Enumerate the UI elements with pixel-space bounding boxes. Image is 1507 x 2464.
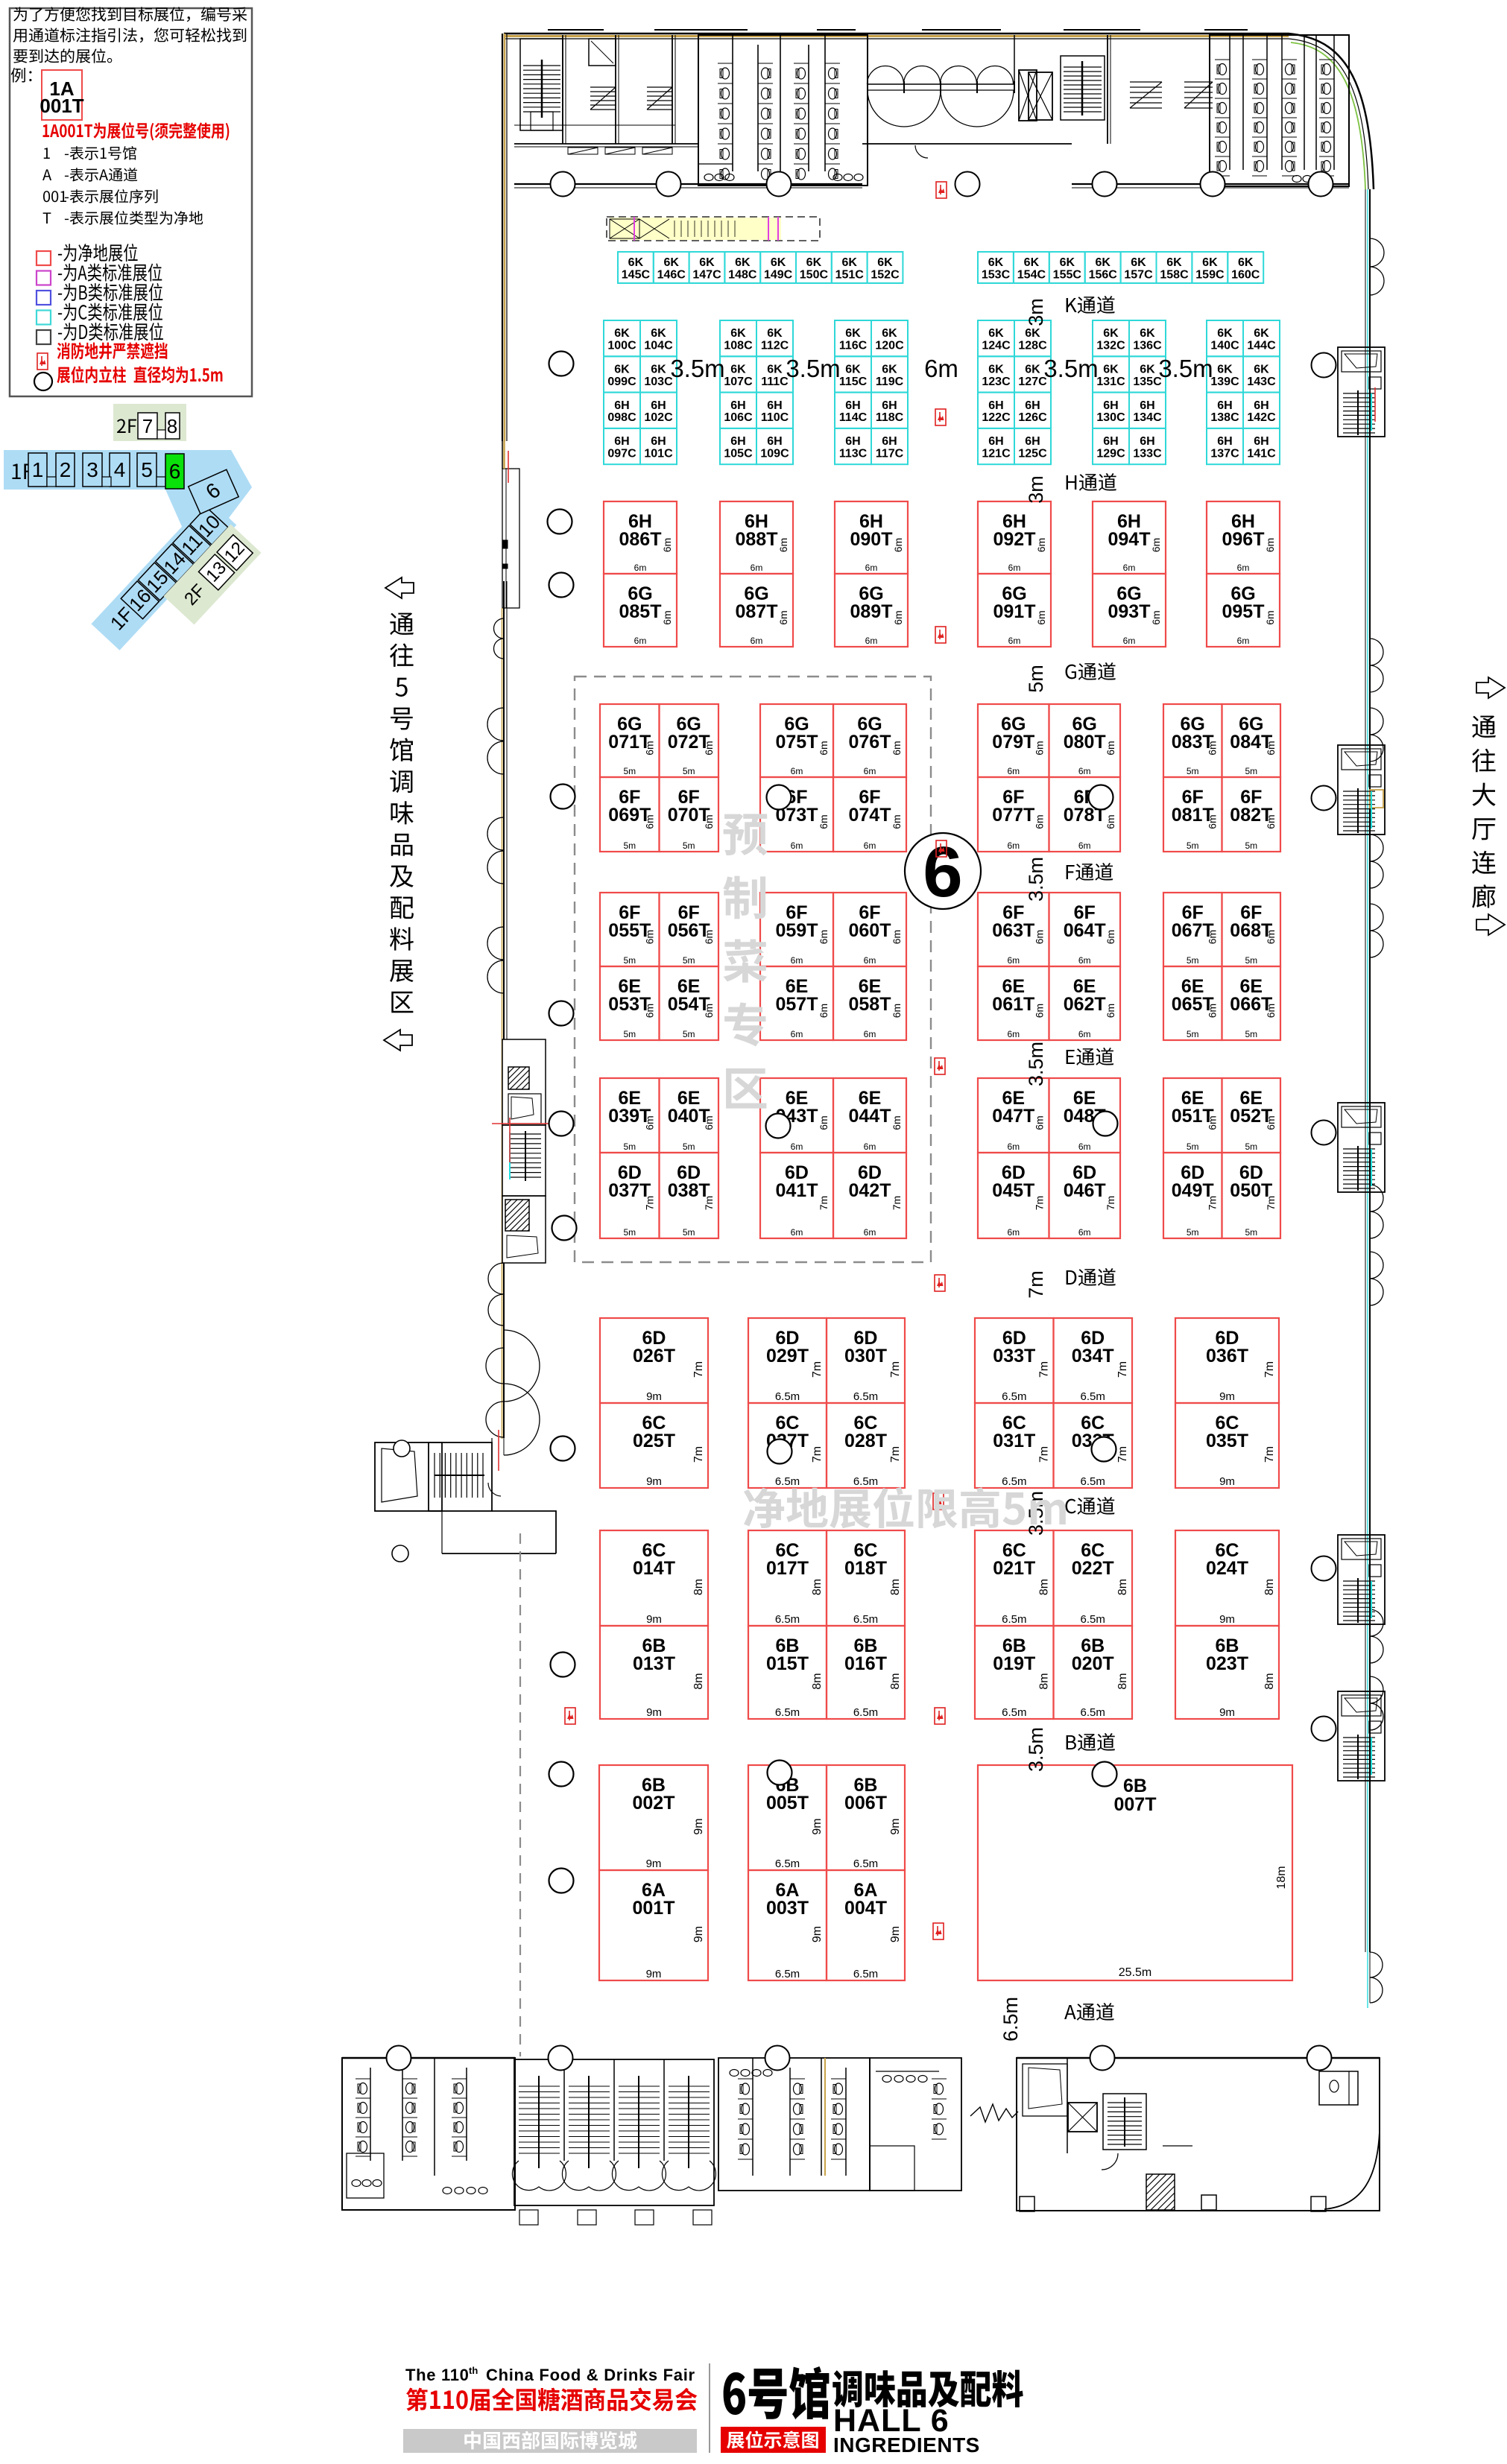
svg-text:6K: 6K [1217,327,1233,340]
svg-text:7m: 7m [1034,1196,1046,1210]
svg-text:6.5m: 6.5m [853,1613,878,1626]
svg-text:108C: 108C [724,340,753,352]
svg-text:6.5m: 6.5m [1002,1475,1026,1488]
svg-text:6m: 6m [1034,1004,1046,1018]
svg-text:6m: 6m [1007,1141,1020,1152]
svg-text:6.5m: 6.5m [1081,1475,1105,1488]
svg-text:5m: 5m [623,1227,636,1238]
svg-text:5m: 5m [683,1227,695,1238]
svg-text:046T: 046T [1064,1180,1106,1201]
svg-text:8m: 8m [889,1579,902,1595]
svg-text:7m: 7m [1263,1361,1276,1378]
svg-text:7m: 7m [1116,1361,1129,1378]
svg-text:6m: 6m [1207,814,1219,829]
svg-text:18m: 18m [1275,1866,1288,1889]
svg-text:6m: 6m [864,1227,876,1238]
svg-text:6K: 6K [730,364,746,376]
svg-text:6H: 6H [614,435,629,448]
svg-text:034T: 034T [1072,1346,1114,1366]
svg-text:6m: 6m [1265,1115,1277,1130]
svg-text:020T: 020T [1072,1653,1114,1674]
svg-text:001T: 001T [633,1898,675,1919]
svg-text:6m: 6m [1150,610,1162,624]
svg-text:5m: 5m [683,1141,695,1152]
svg-text:6H: 6H [651,435,666,448]
svg-text:100C: 100C [607,340,636,352]
svg-text:6H: 6H [845,399,860,412]
svg-text:6H: 6H [767,399,782,412]
svg-text:126C: 126C [1018,411,1047,424]
svg-text:024T: 024T [1206,1558,1248,1579]
svg-text:124C: 124C [982,340,1011,352]
svg-text:6.5m: 6.5m [853,1390,878,1403]
svg-text:6K: 6K [1254,327,1269,340]
svg-text:6K: 6K [988,364,1004,376]
svg-text:6H: 6H [1217,399,1232,412]
svg-text:5m: 5m [1187,840,1199,851]
svg-text:105C: 105C [724,448,753,460]
svg-text:6m: 6m [864,1029,876,1039]
svg-text:6m: 6m [1007,955,1020,966]
svg-text:062T: 062T [1064,994,1106,1015]
svg-text:6K: 6K [735,256,751,269]
svg-text:7m: 7m [1038,1446,1051,1463]
svg-text:6K: 6K [1140,327,1155,340]
svg-text:6K: 6K [882,327,897,340]
svg-text:5m: 5m [1245,1227,1257,1238]
svg-text:6K: 6K [1202,256,1218,269]
svg-text:6m: 6m [818,741,830,755]
svg-text:6m: 6m [818,1115,830,1130]
svg-text:107C: 107C [724,376,753,388]
svg-text:6.5m: 6.5m [775,1857,800,1870]
svg-text:6m: 6m [864,955,876,966]
svg-text:5m: 5m [623,1029,636,1039]
svg-text:118C: 118C [876,411,904,424]
svg-text:025T: 025T [633,1431,675,1451]
svg-text:146C: 146C [657,269,686,282]
svg-text:6m: 6m [1123,636,1136,646]
svg-text:130C: 130C [1096,411,1125,424]
svg-text:6K: 6K [1024,256,1040,269]
svg-text:6m: 6m [1207,741,1219,755]
svg-text:6K: 6K [806,256,822,269]
svg-text:9m: 9m [646,1968,662,1980]
svg-text:6K: 6K [1238,256,1254,269]
svg-text:090T: 090T [850,529,893,550]
svg-text:017T: 017T [766,1558,809,1579]
svg-text:7m: 7m [889,1446,902,1463]
svg-text:6H: 6H [988,399,1003,412]
svg-text:6m: 6m [1105,930,1116,944]
svg-text:th: th [469,2365,478,2376]
svg-text:6.5m: 6.5m [853,1857,878,1870]
svg-text:6H: 6H [651,399,666,412]
svg-text:5m: 5m [623,840,636,851]
svg-text:6.5m: 6.5m [775,1706,800,1719]
svg-text:125C: 125C [1018,448,1047,460]
svg-text:075T: 075T [776,732,818,753]
svg-text:8m: 8m [1038,1673,1051,1689]
svg-text:021T: 021T [993,1558,1035,1579]
svg-text:5m: 5m [683,840,695,851]
svg-text:6m: 6m [1105,814,1116,829]
svg-text:5m: 5m [1187,1029,1199,1039]
svg-text:6m: 6m [1123,563,1136,573]
svg-text:057T: 057T [776,994,818,1015]
svg-text:6m: 6m [644,814,656,829]
svg-text:7m: 7m [818,1196,830,1210]
svg-text:6H: 6H [1140,399,1154,412]
svg-text:086T: 086T [619,529,662,550]
svg-text:6m: 6m [1265,930,1277,944]
svg-text:045T: 045T [992,1180,1034,1201]
svg-text:6m: 6m [1105,1004,1116,1018]
svg-text:3m: 3m [1025,475,1047,504]
svg-text:3.5m: 3.5m [1025,1042,1047,1086]
svg-text:095T: 095T [1222,601,1265,622]
svg-text:6m: 6m [777,538,789,552]
svg-text:115C: 115C [839,376,868,388]
svg-text:074T: 074T [849,805,891,826]
svg-text:151C: 151C [835,269,865,282]
svg-text:6m: 6m [1078,1141,1091,1152]
svg-text:6m: 6m [1034,930,1046,944]
svg-text:6m: 6m [924,355,958,382]
svg-text:106C: 106C [724,411,753,424]
svg-text:6m: 6m [1078,1029,1091,1039]
svg-text:6.5m: 6.5m [853,1475,878,1488]
svg-text:3.5m: 3.5m [1043,355,1098,382]
svg-text:085T: 085T [619,601,662,622]
svg-text:064T: 064T [1064,920,1106,941]
svg-text:6.5m: 6.5m [1081,1613,1105,1626]
svg-text:080T: 080T [1064,732,1106,753]
svg-text:3.5m: 3.5m [786,355,840,382]
svg-text:121C: 121C [982,448,1011,460]
svg-text:022T: 022T [1072,1558,1114,1579]
svg-text:8m: 8m [1116,1579,1129,1595]
svg-text:6K: 6K [1131,256,1146,269]
svg-text:6m: 6m [791,840,803,851]
svg-text:6K: 6K [845,364,861,376]
svg-text:7: 7 [142,415,153,437]
svg-text:6B: 6B [1123,1776,1147,1796]
svg-text:094T: 094T [1108,529,1151,550]
svg-text:6K: 6K [988,256,1004,269]
svg-text:7m: 7m [644,1196,656,1210]
svg-text:3m: 3m [1025,298,1047,326]
svg-text:6K: 6K [1060,256,1075,269]
svg-text:116C: 116C [839,340,868,352]
svg-text:097C: 097C [607,448,636,460]
svg-text:152C: 152C [871,269,900,282]
svg-text:6.5m: 6.5m [1002,1613,1026,1626]
svg-text:001T: 001T [40,95,83,117]
svg-text:6K: 6K [614,364,630,376]
svg-text:132C: 132C [1096,340,1125,352]
svg-text:3.5m: 3.5m [670,355,724,382]
svg-text:111C: 111C [761,376,789,388]
svg-text:6H: 6H [614,399,629,412]
svg-text:6m: 6m [1035,538,1047,552]
svg-text:China Food & Drinks Fair: China Food & Drinks Fair [486,2366,695,2384]
svg-text:5m: 5m [1245,1029,1257,1039]
svg-text:029T: 029T [766,1346,809,1366]
svg-text:6m: 6m [1078,1227,1091,1238]
svg-text:101C: 101C [644,448,673,460]
svg-text:6K: 6K [882,364,897,376]
svg-text:8m: 8m [1116,1673,1129,1689]
svg-text:6K: 6K [1217,364,1233,376]
svg-text:6K: 6K [767,327,783,340]
svg-text:6K: 6K [663,256,679,269]
svg-text:5m: 5m [1187,1227,1199,1238]
svg-text:7m: 7m [1207,1196,1219,1210]
svg-text:137C: 137C [1210,448,1239,460]
svg-text:077T: 077T [992,805,1034,826]
svg-text:006T: 006T [844,1793,887,1814]
svg-text:8m: 8m [1263,1673,1276,1689]
svg-text:6.5m: 6.5m [853,1706,878,1719]
svg-text:134C: 134C [1133,411,1162,424]
svg-text:9m: 9m [692,1926,705,1942]
svg-text:8m: 8m [811,1579,824,1595]
svg-text:3.5m: 3.5m [1158,355,1213,382]
svg-text:5m: 5m [1187,1141,1199,1152]
svg-text:6m: 6m [1150,538,1162,552]
svg-text:6m: 6m [1007,1227,1020,1238]
svg-text:6m: 6m [1034,741,1046,755]
svg-text:6m: 6m [1237,563,1250,573]
svg-text:6m: 6m [818,1004,830,1018]
svg-text:6m: 6m [1264,610,1276,624]
svg-text:7m: 7m [891,1196,903,1210]
svg-text:103C: 103C [644,376,673,388]
svg-text:7m: 7m [692,1361,705,1378]
svg-text:6m: 6m [891,741,903,755]
svg-text:135C: 135C [1133,376,1162,388]
svg-text:6H: 6H [882,435,897,448]
svg-text:158C: 158C [1160,269,1189,282]
svg-text:6m: 6m [791,1227,803,1238]
svg-text:8m: 8m [1263,1579,1276,1595]
svg-text:013T: 013T [633,1653,675,1674]
svg-text:120C: 120C [875,340,904,352]
svg-text:144C: 144C [1247,340,1276,352]
svg-text:129C: 129C [1096,448,1125,460]
svg-text:059T: 059T [776,920,818,941]
svg-text:122C: 122C [982,411,1011,424]
svg-text:114C: 114C [839,411,868,424]
svg-text:6K: 6K [1166,256,1182,269]
svg-text:005T: 005T [766,1793,809,1814]
svg-text:9m: 9m [646,1390,662,1403]
svg-text:7m: 7m [1105,1196,1116,1210]
svg-text:9m: 9m [1219,1613,1235,1626]
svg-text:3.5m: 3.5m [1025,1727,1047,1772]
svg-text:6m: 6m [751,563,763,573]
svg-text:6m: 6m [703,1115,715,1130]
svg-text:160C: 160C [1231,269,1260,282]
svg-text:036T: 036T [1206,1346,1248,1366]
svg-text:6H: 6H [730,399,745,412]
svg-text:5m: 5m [623,766,636,776]
svg-text:092T: 092T [993,529,1036,550]
svg-text:6m: 6m [1034,1115,1046,1130]
svg-text:6K: 6K [628,256,644,269]
svg-text:148C: 148C [728,269,757,282]
svg-text:6K: 6K [1103,327,1119,340]
svg-text:6H: 6H [988,435,1003,448]
svg-text:6m: 6m [777,610,789,624]
svg-text:079T: 079T [992,732,1034,753]
svg-text:157C: 157C [1124,269,1153,282]
svg-text:6K: 6K [767,364,783,376]
svg-text:6K: 6K [988,327,1004,340]
svg-text:004T: 004T [844,1898,887,1919]
svg-text:028T: 028T [844,1431,887,1451]
svg-text:6: 6 [923,832,962,912]
svg-text:6.5m: 6.5m [775,1390,800,1403]
svg-text:155C: 155C [1053,269,1082,282]
svg-text:5m: 5m [1245,840,1257,851]
svg-text:089T: 089T [850,601,893,622]
svg-text:015T: 015T [766,1653,809,1674]
svg-text:6H: 6H [882,399,897,412]
svg-text:5m: 5m [623,955,636,966]
svg-text:060T: 060T [849,920,891,941]
svg-text:104C: 104C [644,340,673,352]
svg-text:6.5m: 6.5m [1002,1390,1026,1403]
svg-text:098C: 098C [607,411,636,424]
svg-text:156C: 156C [1089,269,1118,282]
svg-text:8m: 8m [692,1579,705,1595]
svg-text:113C: 113C [839,448,868,460]
svg-text:6K: 6K [877,256,893,269]
svg-text:141C: 141C [1247,448,1276,460]
svg-text:7m: 7m [692,1446,705,1463]
svg-text:6H: 6H [767,435,782,448]
svg-text:6m: 6m [818,814,830,829]
svg-text:6m: 6m [1078,955,1091,966]
svg-text:150C: 150C [800,269,829,282]
svg-text:7m: 7m [703,1196,715,1210]
svg-text:6m: 6m [1207,930,1219,944]
svg-text:6m: 6m [891,930,903,944]
svg-text:6m: 6m [791,955,803,966]
svg-text:6H: 6H [1140,435,1154,448]
svg-text:6H: 6H [1217,435,1232,448]
svg-text:6K: 6K [841,256,857,269]
svg-text:25.5m: 25.5m [1119,1966,1151,1979]
svg-text:9m: 9m [811,1818,824,1834]
svg-text:140C: 140C [1210,340,1239,352]
svg-text:9m: 9m [889,1926,902,1942]
svg-text:6m: 6m [703,741,715,755]
svg-text:3: 3 [86,458,98,481]
svg-text:6H: 6H [1254,399,1269,412]
svg-text:063T: 063T [992,920,1034,941]
svg-text:6m: 6m [864,1141,876,1152]
svg-text:7m: 7m [1025,1270,1047,1299]
svg-text:123C: 123C [982,376,1011,388]
svg-text:9m: 9m [1219,1706,1235,1719]
svg-text:5m: 5m [623,1141,636,1152]
svg-text:6: 6 [169,460,181,483]
svg-text:002T: 002T [633,1793,675,1814]
svg-text:093T: 093T [1108,601,1151,622]
svg-text:6m: 6m [644,930,656,944]
svg-text:6m: 6m [1207,1004,1219,1018]
svg-text:5m: 5m [1245,1141,1257,1152]
svg-text:6m: 6m [865,563,878,573]
svg-text:5m: 5m [1245,955,1257,966]
svg-text:6H: 6H [1025,435,1040,448]
svg-text:9m: 9m [646,1613,662,1626]
svg-text:6m: 6m [1007,1029,1020,1039]
svg-text:117C: 117C [876,448,904,460]
svg-text:5: 5 [141,458,153,481]
svg-text:6K: 6K [1140,364,1155,376]
svg-text:6m: 6m [864,766,876,776]
svg-text:8m: 8m [889,1673,902,1689]
svg-text:6m: 6m [1007,840,1020,851]
svg-text:6.5m: 6.5m [775,1968,800,1980]
svg-text:145C: 145C [622,269,651,282]
svg-text:6m: 6m [644,741,656,755]
svg-text:6m: 6m [661,610,673,624]
svg-text:6m: 6m [891,814,903,829]
svg-text:142C: 142C [1247,411,1276,424]
svg-text:7m: 7m [1265,1196,1277,1210]
svg-text:6m: 6m [791,1141,803,1152]
svg-text:5m: 5m [683,766,695,776]
svg-text:9m: 9m [646,1475,662,1488]
svg-text:6m: 6m [791,1029,803,1039]
svg-text:6m: 6m [644,1004,656,1018]
svg-text:5m: 5m [683,955,695,966]
svg-text:127C: 127C [1018,376,1047,388]
svg-text:6K: 6K [771,256,786,269]
svg-text:018T: 018T [844,1558,887,1579]
svg-text:154C: 154C [1017,269,1046,282]
svg-text:6H: 6H [1025,399,1040,412]
svg-text:5m: 5m [1187,955,1199,966]
svg-text:149C: 149C [764,269,793,282]
svg-text:9m: 9m [811,1926,824,1942]
svg-text:1: 1 [32,458,44,481]
svg-text:6m: 6m [634,563,647,573]
svg-text:6H: 6H [1254,435,1269,448]
svg-text:8m: 8m [811,1673,824,1689]
svg-text:6H: 6H [845,435,860,448]
svg-text:6m: 6m [864,840,876,851]
svg-text:6K: 6K [845,327,861,340]
svg-text:023T: 023T [1206,1653,1248,1674]
svg-text:035T: 035T [1206,1431,1248,1451]
svg-text:6m: 6m [891,1004,903,1018]
svg-text:159C: 159C [1195,269,1225,282]
svg-text:6m: 6m [865,636,878,646]
svg-text:9m: 9m [646,1857,662,1870]
svg-text:6H: 6H [730,435,745,448]
svg-text:6.5m: 6.5m [853,1968,878,1980]
svg-text:6K: 6K [1103,364,1119,376]
svg-text:041T: 041T [776,1180,818,1201]
svg-text:6m: 6m [634,636,647,646]
svg-text:2: 2 [60,458,72,481]
